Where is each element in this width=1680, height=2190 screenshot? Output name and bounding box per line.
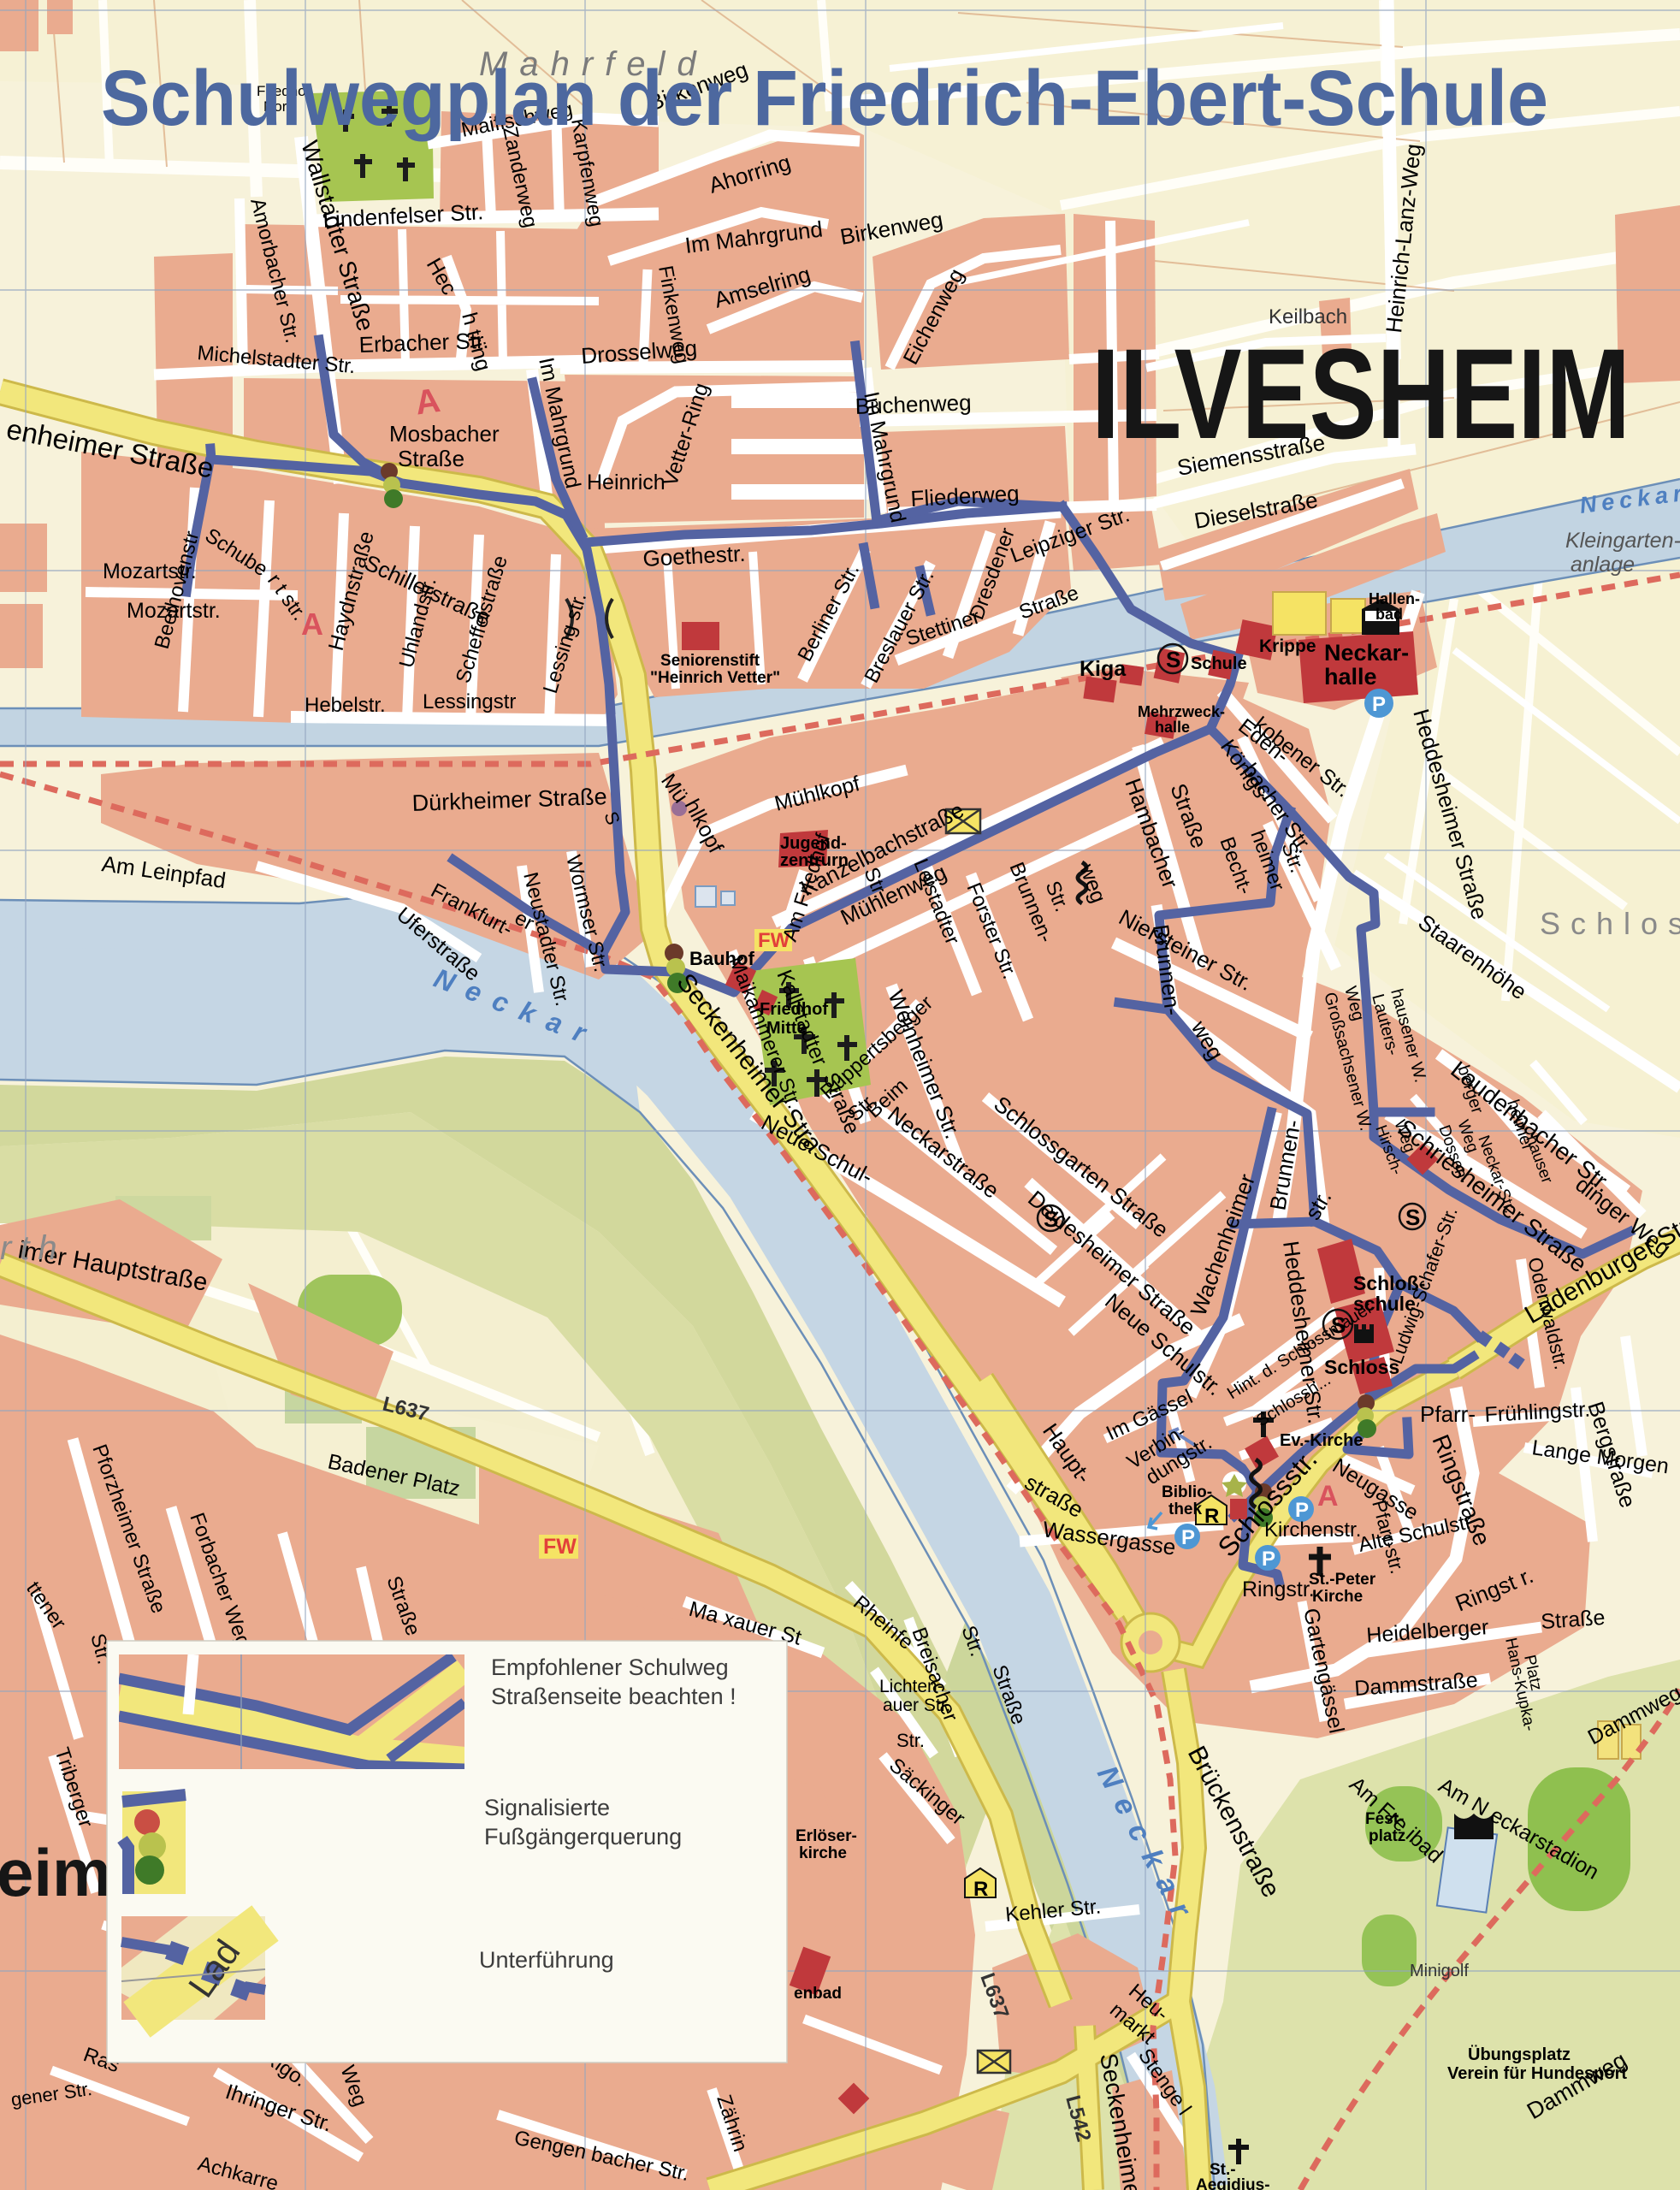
svg-text:Schulwegplan der Friedrich-Ebe: Schulwegplan der Friedrich-Ebert-Schule — [101, 55, 1548, 142]
svg-text:Hallen-: Hallen- — [1369, 590, 1420, 607]
svg-text:halle: halle — [1324, 664, 1377, 690]
svg-text:Biblio-: Biblio- — [1162, 1483, 1212, 1501]
svg-text:thek: thek — [1168, 1500, 1203, 1518]
svg-text:Minigolf: Minigolf — [1410, 1962, 1469, 1980]
svg-text:anlage: anlage — [1571, 553, 1635, 577]
svg-text:Signalisierte: Signalisierte — [484, 1795, 610, 1820]
svg-text:Fest-: Fest- — [1365, 1810, 1404, 1828]
svg-text:Krippe: Krippe — [1259, 636, 1316, 656]
svg-text:Übungsplatz: Übungsplatz — [1468, 2045, 1571, 2064]
svg-text:Schloss: Schloss — [1540, 906, 1680, 941]
svg-text:enbad: enbad — [794, 1985, 842, 2003]
svg-text:rth: rth — [0, 1229, 66, 1267]
svg-text:Mehrzweck-: Mehrzweck- — [1138, 703, 1225, 720]
svg-text:Lessingstr: Lessingstr — [423, 690, 516, 713]
svg-text:R: R — [973, 1878, 988, 1901]
svg-text:Mozartstr.: Mozartstr. — [127, 599, 221, 623]
svg-text:Heinrich: Heinrich — [587, 471, 665, 494]
svg-text:Pfarr-: Pfarr- — [1420, 1401, 1476, 1427]
svg-text:Schule: Schule — [1191, 654, 1247, 673]
svg-text:Unterführung: Unterführung — [479, 1947, 614, 1973]
svg-text:Fußgängerquerung: Fußgängerquerung — [484, 1824, 682, 1850]
svg-text:ILVESHEIM: ILVESHEIM — [1091, 322, 1630, 465]
svg-text:Straßenseite beachten !: Straßenseite beachten ! — [491, 1684, 736, 1709]
svg-text:platz: platz — [1369, 1827, 1405, 1845]
svg-text:Kirche: Kirche — [1312, 1588, 1363, 1606]
svg-text:kirche: kirche — [799, 1844, 847, 1862]
svg-text:FW: FW — [543, 1535, 577, 1559]
svg-text:S: S — [1166, 647, 1180, 672]
svg-text:P: P — [1372, 693, 1386, 716]
svg-text:Seniorenstift: Seniorenstift — [660, 652, 760, 670]
svg-text:Kiga: Kiga — [1080, 657, 1127, 681]
svg-text:Neckar-: Neckar- — [1324, 640, 1409, 666]
svg-text:Mozartstr.: Mozartstr. — [103, 559, 197, 583]
svg-text:Straße: Straße — [398, 446, 464, 471]
svg-text:Empfohlener Schulweg: Empfohlener Schulweg — [491, 1654, 729, 1680]
svg-text:Ringstr.: Ringstr. — [1242, 1577, 1315, 1601]
svg-text:A: A — [1317, 1480, 1339, 1512]
svg-text:Erbacher Str.: Erbacher Str. — [358, 328, 489, 358]
svg-text:A: A — [413, 382, 443, 423]
svg-text:Erlöser-: Erlöser- — [796, 1827, 857, 1845]
svg-text:Aegidius-: Aegidius- — [1196, 2176, 1270, 2190]
svg-text:R: R — [1204, 1505, 1219, 1528]
svg-text:Goethestr.: Goethestr. — [642, 541, 746, 571]
svg-text:S: S — [1405, 1204, 1420, 1230]
svg-text:eim: eim — [0, 1835, 111, 1910]
svg-text:Kirchenstr.: Kirchenstr. — [1264, 1518, 1361, 1542]
svg-text:Ev.-Kirche: Ev.-Kirche — [1280, 1431, 1363, 1450]
svg-text:Mosbacher: Mosbacher — [389, 421, 500, 447]
svg-text:Hebelstr.: Hebelstr. — [305, 694, 386, 717]
svg-text:P: P — [1181, 1526, 1195, 1549]
svg-text:Kleingarten-: Kleingarten- — [1565, 529, 1680, 553]
svg-text:"Heinrich Vetter": "Heinrich Vetter" — [650, 669, 780, 687]
svg-text:Str.: Str. — [896, 1730, 925, 1751]
svg-text:halle: halle — [1155, 719, 1190, 736]
svg-text:Straße: Straße — [1540, 1606, 1606, 1634]
svg-text:St.-Peter: St.-Peter — [1309, 1571, 1376, 1589]
svg-text:P: P — [1262, 1548, 1275, 1571]
svg-text:bad: bad — [1375, 606, 1403, 623]
